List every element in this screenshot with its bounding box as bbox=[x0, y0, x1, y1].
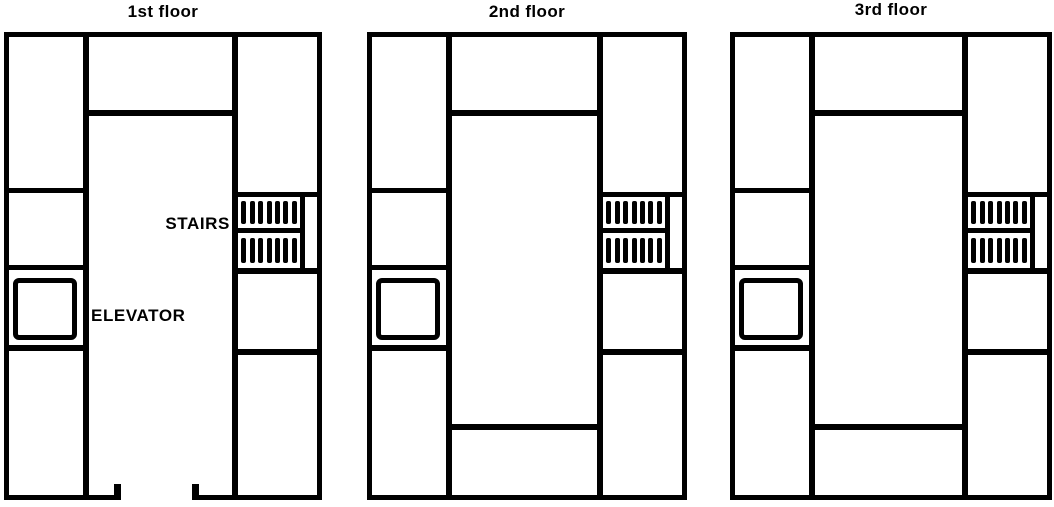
stairs-flight-upper bbox=[603, 197, 665, 228]
wall-right-room-divider bbox=[968, 349, 1052, 355]
stair-tread-hatch bbox=[258, 201, 263, 223]
wall-outer-bottom bbox=[367, 495, 687, 500]
stair-tread-hatch bbox=[980, 201, 985, 223]
wall-stairs-bottom bbox=[597, 268, 687, 274]
wall-stairs-bottom bbox=[962, 268, 1052, 274]
elevator-shaft bbox=[13, 278, 77, 340]
wall-outer-top bbox=[367, 32, 687, 37]
wall-left-room-divider bbox=[4, 188, 89, 193]
stair-tread-hatch bbox=[1005, 238, 1010, 263]
stair-tread-hatch bbox=[615, 201, 620, 223]
stairs-flight-upper bbox=[968, 197, 1030, 228]
stairs-label: STAIRS bbox=[165, 214, 230, 234]
floor-2-title: 2nd floor bbox=[367, 2, 687, 22]
stair-tread-hatch bbox=[292, 201, 297, 223]
stair-tread-hatch bbox=[988, 201, 993, 223]
wall-outer-bottom bbox=[730, 495, 1052, 500]
wall-center-room-bottom bbox=[452, 424, 597, 430]
wall-top-center-room bbox=[452, 110, 597, 116]
stairs-flight-lower bbox=[968, 233, 1030, 268]
stair-tread-hatch bbox=[1022, 201, 1027, 223]
wall-left-room-divider bbox=[367, 188, 452, 193]
wall-top-center-room bbox=[89, 110, 232, 116]
stair-tread-hatch bbox=[267, 201, 272, 223]
stair-tread-hatch bbox=[1022, 238, 1027, 263]
stair-tread-hatch bbox=[657, 201, 662, 223]
wall-stairs-landing bbox=[300, 192, 305, 274]
stair-tread-hatch bbox=[606, 201, 611, 223]
wall-right-room-divider bbox=[603, 349, 687, 355]
wall-outer-right bbox=[1047, 32, 1052, 500]
stair-tread-hatch bbox=[1013, 201, 1018, 223]
stair-tread-hatch bbox=[971, 238, 976, 263]
wall-top-center-room bbox=[815, 110, 962, 116]
wall-elevator-room-top bbox=[730, 265, 815, 270]
stair-tread-hatch bbox=[283, 201, 288, 223]
stairs-flight-lower bbox=[238, 233, 300, 268]
wall-bottom-right-segment bbox=[195, 495, 322, 500]
wall-center-room-bottom bbox=[815, 424, 962, 430]
entrance-jamb-left bbox=[114, 484, 121, 500]
stair-tread-hatch bbox=[997, 201, 1002, 223]
stair-tread-hatch bbox=[623, 201, 628, 223]
stairs-flight-upper bbox=[238, 197, 300, 228]
stair-tread-hatch bbox=[241, 238, 246, 263]
wall-elevator-room-top bbox=[367, 265, 452, 270]
wall-stairs-landing bbox=[1030, 192, 1035, 274]
elevator-shaft bbox=[376, 278, 440, 340]
stair-tread-hatch bbox=[1005, 201, 1010, 223]
wall-bottom-left-segment bbox=[4, 495, 117, 500]
stair-tread-hatch bbox=[648, 238, 653, 263]
wall-outer-top bbox=[4, 32, 322, 37]
stair-tread-hatch bbox=[292, 238, 297, 263]
stair-tread-hatch bbox=[971, 201, 976, 223]
wall-elevator-room-bottom bbox=[730, 345, 815, 351]
wall-left-room-divider bbox=[730, 188, 815, 193]
wall-stairs-bottom bbox=[232, 268, 322, 274]
stair-tread-hatch bbox=[250, 201, 255, 223]
stair-tread-hatch bbox=[632, 238, 637, 263]
floorplan-1st-floor: STAIRS ELEVATOR bbox=[4, 32, 322, 500]
floor-3-title: 3rd floor bbox=[730, 0, 1052, 20]
stairs-flight-lower bbox=[603, 233, 665, 268]
stair-tread-hatch bbox=[648, 201, 653, 223]
stair-tread-hatch bbox=[258, 238, 263, 263]
stair-tread-hatch bbox=[632, 201, 637, 223]
wall-outer-top bbox=[730, 32, 1052, 37]
stair-tread-hatch bbox=[988, 238, 993, 263]
wall-stairs-landing bbox=[665, 192, 670, 274]
stair-tread-hatch bbox=[241, 201, 246, 223]
elevator-label: ELEVATOR bbox=[91, 306, 186, 326]
stair-tread-hatch bbox=[997, 238, 1002, 263]
stair-tread-hatch bbox=[267, 238, 272, 263]
stair-tread-hatch bbox=[250, 238, 255, 263]
wall-elevator-room-bottom bbox=[367, 345, 452, 351]
elevator-shaft bbox=[739, 278, 803, 340]
stair-tread-hatch bbox=[283, 238, 288, 263]
stair-tread-hatch bbox=[640, 201, 645, 223]
stair-tread-hatch bbox=[275, 201, 280, 223]
stair-tread-hatch bbox=[606, 238, 611, 263]
stair-tread-hatch bbox=[275, 238, 280, 263]
floorplan-2nd-floor bbox=[367, 32, 687, 500]
stair-tread-hatch bbox=[980, 238, 985, 263]
wall-outer-right bbox=[317, 32, 322, 500]
floorplan-3rd-floor bbox=[730, 32, 1052, 500]
stair-tread-hatch bbox=[615, 238, 620, 263]
wall-outer-right bbox=[682, 32, 687, 500]
floor-1-title: 1st floor bbox=[4, 2, 322, 22]
stair-tread-hatch bbox=[657, 238, 662, 263]
wall-elevator-room-bottom bbox=[4, 345, 89, 351]
stair-tread-hatch bbox=[623, 238, 628, 263]
stair-tread-hatch bbox=[1013, 238, 1018, 263]
stair-tread-hatch bbox=[640, 238, 645, 263]
wall-right-room-divider bbox=[238, 349, 322, 355]
entrance-jamb-right bbox=[192, 484, 199, 500]
wall-elevator-room-top bbox=[4, 265, 89, 270]
floor-plans-figure: 1st floor 2nd floor 3rd floor STAIRS ELE… bbox=[0, 0, 1054, 507]
